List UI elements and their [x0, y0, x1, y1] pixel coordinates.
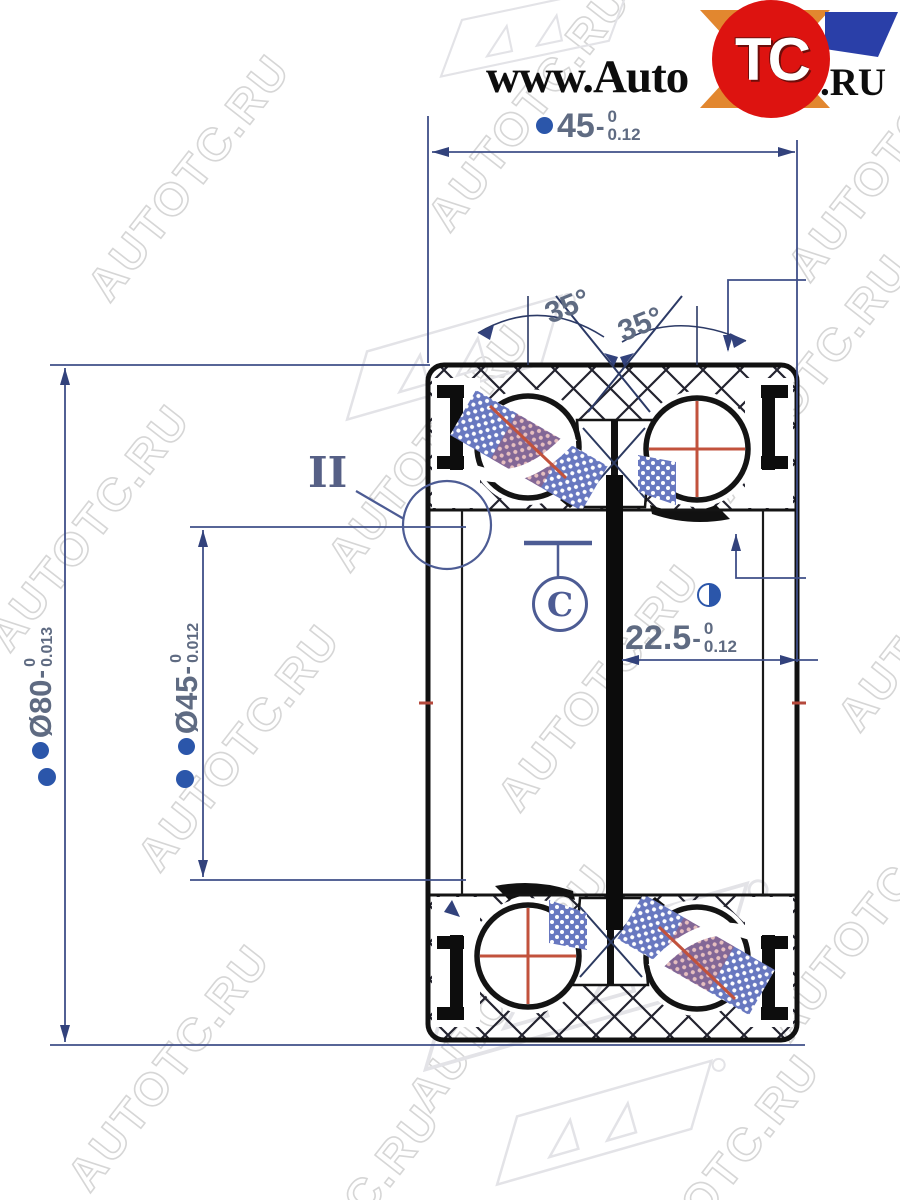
- page: AUTOTC.RU AUTOTC.RU AUTOTC.RU AUTOTC.RU …: [0, 0, 900, 1200]
- logo-badge-text: TC: [735, 25, 807, 94]
- dim-value: Ø80: [25, 680, 56, 739]
- site-logo: www.Auto TC .RU: [0, 0, 900, 140]
- bearing-section: [419, 365, 806, 1040]
- tol-upper: 0: [704, 620, 713, 638]
- tol-lower: 0.12: [704, 638, 737, 656]
- bullet-icon: [32, 742, 49, 759]
- logo-url-prefix: www.Auto: [486, 50, 688, 104]
- datum-letter: C: [547, 585, 573, 624]
- bearing-drawing: [0, 0, 900, 1200]
- inner-ring-split: [606, 475, 623, 930]
- bullet-icon: [178, 738, 195, 755]
- tol-lower: 0.013: [40, 627, 57, 667]
- half-filled-dot-icon: [697, 583, 721, 607]
- dim-minus: -: [173, 666, 199, 675]
- tol-upper: 0: [169, 654, 186, 663]
- dim-bore-diameter-label: Ø45 - 0 0.012: [163, 559, 209, 819]
- dim-half-width-label: 22.5 - 0 0.12: [625, 620, 737, 656]
- detail-view-label: II: [308, 448, 347, 497]
- logo-tc-badge: TC: [712, 0, 830, 118]
- dim-minus: -: [27, 670, 53, 679]
- tol-lower: 0.012: [186, 623, 203, 663]
- logo-url-suffix: .RU: [820, 60, 886, 105]
- dim-value: 22.5: [625, 621, 691, 655]
- tol-upper: 0: [23, 658, 40, 667]
- datum-symbol-lines: [524, 543, 592, 577]
- dim-outer-diameter-label: Ø80 - 0 0.013: [17, 563, 63, 823]
- datum-label: C: [532, 576, 588, 632]
- dim-minus: -: [692, 625, 701, 651]
- dim-value: Ø45: [171, 676, 202, 735]
